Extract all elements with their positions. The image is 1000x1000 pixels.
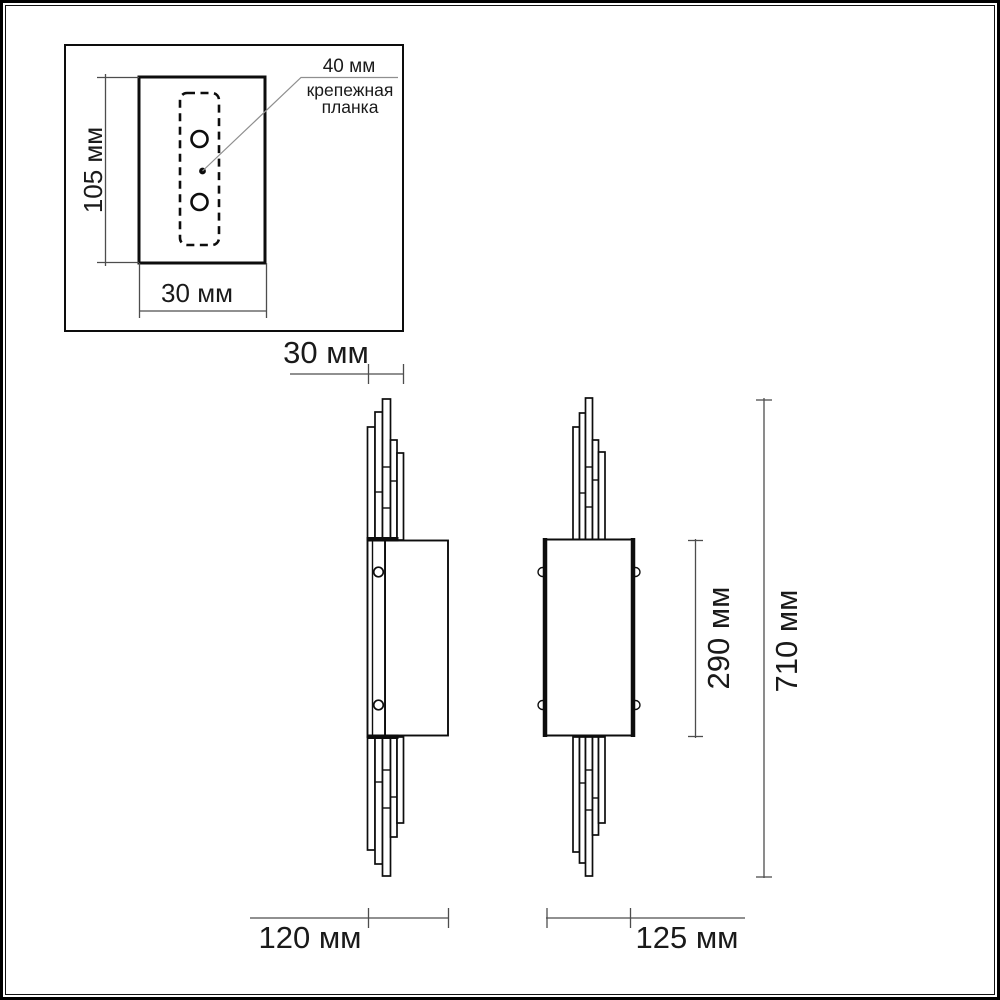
side-view-top-band bbox=[368, 537, 399, 542]
inset-width-dimension: 30 мм bbox=[139, 263, 267, 318]
hole-spacing-label: 40 мм bbox=[323, 56, 376, 77]
side-width-label: 120 мм bbox=[259, 920, 362, 955]
inset-height-dimension: 105 мм bbox=[78, 74, 139, 266]
side-view-top-fins bbox=[368, 399, 404, 540]
front-view-top-fins bbox=[573, 398, 605, 540]
body-height-label: 290 мм bbox=[701, 587, 736, 690]
inset-height-label: 105 мм bbox=[78, 127, 108, 213]
screw-hole-top bbox=[192, 131, 208, 147]
inset-width-label: 30 мм bbox=[161, 278, 233, 308]
technical-drawing: 40 мм крепежная планка 105 мм 30 мм bbox=[0, 0, 1000, 1000]
front-width-label: 125 мм bbox=[636, 920, 739, 955]
overall-height-dimension: 710 мм bbox=[756, 398, 804, 878]
side-width-dimension: 120 мм bbox=[250, 908, 449, 955]
body-height-dimension: 290 мм bbox=[688, 539, 736, 738]
lamp-front-view bbox=[538, 398, 640, 876]
front-view-bottom-fins bbox=[573, 737, 605, 876]
side-view-bottom-band bbox=[368, 735, 399, 740]
lamp-side-view bbox=[368, 399, 449, 876]
overall-height-label: 710 мм bbox=[769, 590, 804, 693]
dimension-drawing-page: 40 мм крепежная планка 105 мм 30 мм bbox=[0, 0, 1000, 1000]
front-view-body bbox=[545, 539, 633, 737]
screw-hole-bottom bbox=[192, 194, 208, 210]
bracket-callout-line2: планка bbox=[322, 97, 379, 117]
front-width-dimension: 125 мм bbox=[546, 908, 745, 955]
depth-label: 30 мм bbox=[283, 335, 369, 370]
side-view-bottom-fins bbox=[368, 737, 404, 876]
depth-dimension: 30 мм bbox=[283, 335, 404, 384]
mounting-bracket-dashed bbox=[180, 93, 219, 245]
side-view-body bbox=[385, 541, 448, 736]
mounting-plate-inset: 40 мм крепежная планка 105 мм 30 мм bbox=[65, 45, 403, 331]
